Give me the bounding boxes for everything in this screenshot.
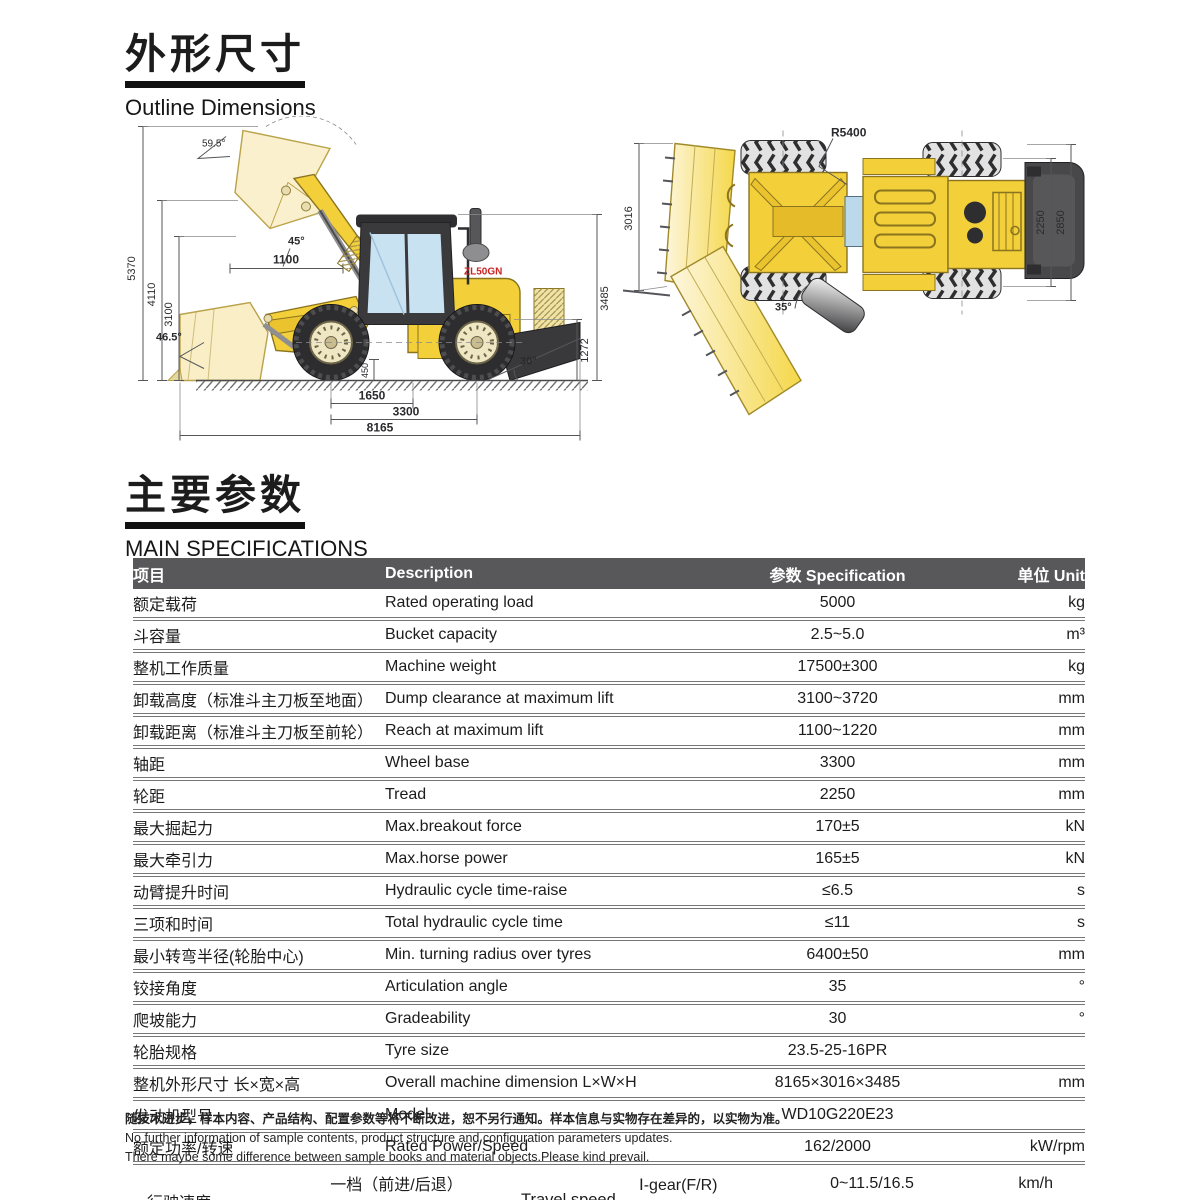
table-row: 整机工作质量Machine weight17500±300kg (133, 651, 1085, 683)
spec-value: 3300 (720, 747, 955, 779)
dim-front-overhang: 1650 (359, 389, 386, 403)
table-row: 轮距Tread2250mm (133, 779, 1085, 811)
turning-radius-label: R5400 (831, 126, 867, 140)
spec-value: 23.5-25-16PR (720, 1035, 955, 1067)
disclaimer-line-en2: There maybe some difference between samp… (125, 1148, 1087, 1167)
spec-unit: kg (955, 589, 1085, 619)
table-row: 爬坡能力Gradeability30° (133, 1003, 1085, 1035)
spec-desc: Articulation angle (385, 971, 720, 1003)
spec-sheet-page: 外形尺寸 Outline Dimensions (0, 0, 1200, 1200)
travel-item-zh: 行驶速度 (133, 1189, 232, 1200)
table-row: 斗容量Bucket capacity2.5~5.0m³ (133, 619, 1085, 651)
specs-section-header: 主要参数 MAIN SPECIFICATIONS (125, 474, 368, 562)
spec-unit: mm (955, 779, 1085, 811)
dim-ground-clearance: 450 (360, 363, 370, 378)
loader-top-view-drawing: 3016 R5400 35° 2250 2850 (623, 116, 1103, 456)
dim-wheelbase: 3300 (393, 405, 420, 419)
spec-item: 斗容量 (133, 619, 385, 651)
dim-overall-height: 5370 (126, 256, 138, 280)
table-row: 卸载高度（标准斗主刀板至地面）Dump clearance at maximum… (133, 683, 1085, 715)
spec-unit: mm (955, 683, 1085, 715)
table-row: 最大牵引力Max.horse power165±5kN (133, 843, 1085, 875)
spec-table-wrap: 项目 Description 参数 Specification 单位 Unit … (133, 558, 1085, 1200)
spec-item: 整机外形尺寸 长×宽×高 (133, 1067, 385, 1099)
travel-gears-zh: 一档（前进/后退） 二档（前进） (284, 1167, 509, 1200)
spec-value: 165±5 (720, 843, 955, 875)
angle-dump: 45° (288, 236, 305, 248)
spec-desc: Dump clearance at maximum lift (385, 683, 720, 715)
angle-articulation: 35° (775, 302, 792, 314)
top-view-machine (623, 131, 1084, 415)
spec-item: 轮距 (133, 779, 385, 811)
travel-desc-en: Travel speed (521, 1191, 639, 1200)
spec-unit: s (955, 907, 1085, 939)
spec-item: 额定载荷 (133, 589, 385, 619)
spec-desc: Tyre size (385, 1035, 720, 1067)
spec-desc: Hydraulic cycle time-raise (385, 875, 720, 907)
dimension-drawings: ZL50GN (118, 116, 1108, 468)
gear1-label-zh: 一档（前进/后退） (284, 1167, 509, 1200)
spec-item: 轴距 (133, 747, 385, 779)
dim-hinge-height: 4110 (146, 283, 158, 307)
spec-unit: mm (955, 1067, 1085, 1099)
spec-value: 3100~3720 (720, 683, 955, 715)
col-header-item: 项目 (133, 558, 385, 589)
spec-item: 最大牵引力 (133, 843, 385, 875)
angle-carry: 46.5° (156, 332, 182, 344)
spec-desc: Max.horse power (385, 843, 720, 875)
col-header-unit: 单位 Unit (955, 558, 1085, 589)
outline-title-zh: 外形尺寸 (125, 33, 305, 88)
spec-unit: kN (955, 843, 1085, 875)
outline-section-header: 外形尺寸 Outline Dimensions (125, 33, 316, 121)
table-row: 最小转弯半径(轮胎中心)Min. turning radius over tyr… (133, 939, 1085, 971)
spec-value: 30 (720, 1003, 955, 1035)
disclaimer: 随技术进步，样本内容、产品结构、配置参数等将不断改进，恕不另行通知。样本信息与实… (125, 1110, 1087, 1166)
table-header-row: 项目 Description 参数 Specification 单位 Unit (133, 558, 1085, 589)
dim-tread-top: 2250 (1035, 210, 1047, 234)
travel-gear-values: Ⅰ-gear(F/R) 0~11.5/16.5 km/h Ⅱ-gear(F) 0… (639, 1171, 1085, 1200)
dim-machine-height: 3485 (599, 286, 611, 310)
spec-desc: Gradeability (385, 1003, 720, 1035)
spec-item: 整机工作质量 (133, 651, 385, 683)
side-view-machine: ZL50GN (168, 116, 588, 390)
spec-value: ≤6.5 (720, 875, 955, 907)
spec-table: 项目 Description 参数 Specification 单位 Unit … (133, 558, 1085, 1200)
spec-item: 轮胎规格 (133, 1035, 385, 1067)
disclaimer-line-zh: 随技术进步，样本内容、产品结构、配置参数等将不断改进，恕不另行通知。样本信息与实… (125, 1110, 1087, 1129)
spec-unit: s (955, 875, 1085, 907)
spec-item: 铰接角度 (133, 971, 385, 1003)
col-header-spec: 参数 Specification (720, 558, 955, 589)
table-row: 动臂提升时间Hydraulic cycle time-raise≤6.5s (133, 875, 1085, 907)
spec-item: 爬坡能力 (133, 1003, 385, 1035)
dim-width-over-tyres: 2850 (1055, 210, 1067, 234)
spec-unit (955, 1035, 1085, 1067)
angle-departure: 30° (520, 356, 537, 368)
model-logo: ZL50GN (464, 267, 502, 278)
spec-value: 1100~1220 (720, 715, 955, 747)
spec-unit: kN (955, 811, 1085, 843)
table-row: 三项和时间Total hydraulic cycle time≤11s (133, 907, 1085, 939)
spec-value: 2.5~5.0 (720, 619, 955, 651)
angle-rollback-top: 59.5° (202, 139, 225, 150)
spec-item: 动臂提升时间 (133, 875, 385, 907)
specs-title-zh: 主要参数 (125, 474, 305, 529)
dim-overall-length: 8165 (367, 421, 394, 435)
dim-dump-height: 3100 (163, 302, 175, 326)
table-row: 轮胎规格Tyre size23.5-25-16PR (133, 1035, 1085, 1067)
spec-item: 三项和时间 (133, 907, 385, 939)
spec-item: 最小转弯半径(轮胎中心) (133, 939, 385, 971)
spec-unit: kg (955, 651, 1085, 683)
spec-desc: Total hydraulic cycle time (385, 907, 720, 939)
table-row: 额定载荷Rated operating load5000kg (133, 589, 1085, 619)
table-row: 最大掘起力Max.breakout force170±5kN (133, 811, 1085, 843)
spec-unit: mm (955, 715, 1085, 747)
spec-unit: mm (955, 939, 1085, 971)
disclaimer-line-en1: No further information of sample content… (125, 1129, 1087, 1148)
spec-unit: ° (955, 1003, 1085, 1035)
table-row: 卸载距离（标准斗主刀板至前轮）Reach at maximum lift1100… (133, 715, 1085, 747)
spec-unit: ° (955, 971, 1085, 1003)
spec-value: ≤11 (720, 907, 955, 939)
spec-desc: Max.breakout force (385, 811, 720, 843)
table-row: 轴距Wheel base3300mm (133, 747, 1085, 779)
spec-desc: Overall machine dimension L×W×H (385, 1067, 720, 1099)
spec-desc: Wheel base (385, 747, 720, 779)
spec-unit: mm (955, 747, 1085, 779)
spec-desc: Machine weight (385, 651, 720, 683)
dim-reach: 1100 (273, 253, 299, 267)
spec-desc: Bucket capacity (385, 619, 720, 651)
spec-value: 8165×3016×3485 (720, 1067, 955, 1099)
loader-side-view-drawing: ZL50GN (118, 116, 623, 456)
spec-item: 卸载距离（标准斗主刀板至前轮） (133, 715, 385, 747)
spec-value: 5000 (720, 589, 955, 619)
dim-rear-height: 1272 (579, 338, 591, 362)
spec-desc: Min. turning radius over tyres (385, 939, 720, 971)
gear1-speed: 0~11.5/16.5 (789, 1171, 955, 1200)
spec-value: 170±5 (720, 811, 955, 843)
spec-desc: Reach at maximum lift (385, 715, 720, 747)
spec-item: 卸载高度（标准斗主刀板至地面） (133, 683, 385, 715)
travel-speed-row: 行驶速度 一档（前进/后退） 二档（前进） Travel speed Ⅰ-gea… (133, 1163, 1085, 1200)
gear1-unit: km/h (955, 1171, 1085, 1200)
spec-value: 35 (720, 971, 955, 1003)
gear1-label-en: Ⅰ-gear(F/R) (639, 1171, 789, 1200)
spec-item: 最大掘起力 (133, 811, 385, 843)
spec-value: 6400±50 (720, 939, 955, 971)
table-row: 整机外形尺寸 长×宽×高Overall machine dimension L×… (133, 1067, 1085, 1099)
spec-value: 2250 (720, 779, 955, 811)
spec-desc: Rated operating load (385, 589, 720, 619)
spec-value: 17500±300 (720, 651, 955, 683)
col-header-description: Description (385, 558, 720, 589)
dim-overall-width: 3016 (623, 206, 635, 230)
spec-desc: Tread (385, 779, 720, 811)
spec-unit: m³ (955, 619, 1085, 651)
table-row: 铰接角度Articulation angle35° (133, 971, 1085, 1003)
